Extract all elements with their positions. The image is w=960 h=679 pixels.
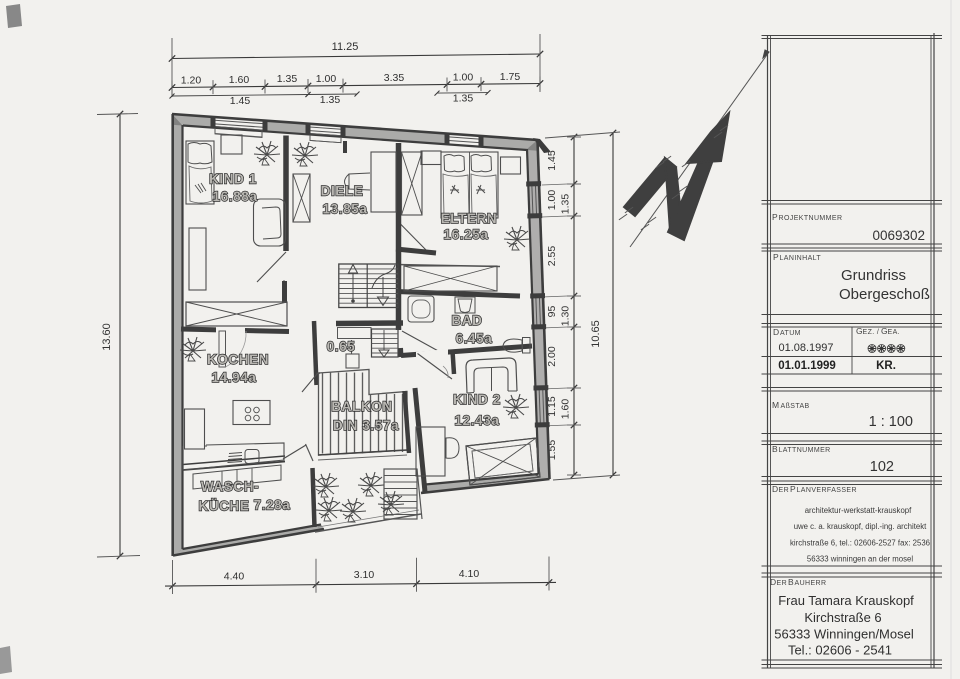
svg-text:uwe c. a. krauskopf, dipl.-ing: uwe c. a. krauskopf, dipl.-ing. architek…	[794, 522, 927, 531]
svg-text:0.65: 0.65	[327, 339, 356, 354]
svg-text:1.35: 1.35	[320, 94, 341, 106]
svg-text:BALKON: BALKON	[331, 399, 392, 414]
svg-text:ROJEKTNUMMER: ROJEKTNUMMER	[779, 215, 843, 222]
svg-text:13.60: 13.60	[101, 323, 113, 351]
svg-text:P: P	[772, 212, 778, 222]
svg-text:M: M	[772, 400, 779, 410]
svg-text:Obergeschoß: Obergeschoß	[839, 286, 930, 303]
svg-text:DIN 3.57a: DIN 3.57a	[333, 418, 399, 433]
svg-text:ATUM: ATUM	[780, 330, 801, 337]
svg-text:6.45a: 6.45a	[456, 331, 493, 346]
svg-text:1.00: 1.00	[453, 71, 474, 83]
svg-text:EZ. /: EZ. /	[863, 329, 880, 336]
svg-text:LANINHALT: LANINHALT	[780, 255, 822, 262]
svg-text:P: P	[773, 252, 779, 262]
svg-text:KOCHEN: KOCHEN	[207, 352, 269, 367]
svg-text:EA.: EA.	[888, 329, 900, 336]
svg-text:10.65: 10.65	[590, 320, 602, 348]
svg-text:1.30: 1.30	[560, 306, 572, 327]
svg-text:Frau Tamara Krauskopf: Frau Tamara Krauskopf	[778, 593, 914, 608]
svg-text:2.55: 2.55	[546, 246, 558, 267]
svg-text:1.00: 1.00	[546, 190, 558, 211]
svg-text:B: B	[788, 577, 794, 587]
svg-text:KIND 1: KIND 1	[209, 172, 257, 187]
svg-text:4.40: 4.40	[224, 570, 245, 582]
svg-text:3.35: 3.35	[384, 72, 405, 84]
svg-text:95: 95	[546, 306, 558, 318]
svg-text:1.60: 1.60	[229, 74, 250, 86]
svg-text:architektur-werkstatt-krauskop: architektur-werkstatt-krauskopf	[805, 506, 912, 515]
svg-text:D: D	[772, 484, 778, 494]
svg-text:102: 102	[870, 459, 894, 475]
svg-text:D: D	[770, 577, 776, 587]
svg-text:16.88a: 16.88a	[213, 189, 258, 204]
svg-text:AUHERR: AUHERR	[795, 580, 827, 587]
svg-text:1.35: 1.35	[560, 194, 572, 215]
svg-text:B: B	[772, 444, 778, 454]
svg-text:01.01.1999: 01.01.1999	[778, 360, 836, 372]
svg-text:Tel.: 02606 - 2541: Tel.: 02606 - 2541	[788, 643, 892, 658]
svg-text:LATTNUMMER: LATTNUMMER	[779, 447, 831, 454]
svg-text:P: P	[790, 484, 796, 494]
svg-text:DIELE: DIELE	[321, 184, 364, 199]
svg-text:4.10: 4.10	[459, 568, 480, 580]
svg-text:56333 Winningen/Mosel: 56333 Winningen/Mosel	[774, 627, 914, 642]
svg-text:ELTERN: ELTERN	[441, 211, 498, 226]
svg-text:BAD: BAD	[451, 313, 482, 328]
svg-text:KR.: KR.	[876, 360, 896, 372]
svg-text:1.35: 1.35	[453, 92, 474, 104]
svg-text:2.00: 2.00	[546, 346, 558, 367]
svg-text:ER: ER	[779, 487, 790, 494]
svg-text:1.45: 1.45	[230, 95, 251, 107]
svg-text:13.85a: 13.85a	[323, 202, 368, 217]
svg-text:1.00: 1.00	[316, 73, 337, 85]
svg-text:16.25a: 16.25a	[444, 227, 489, 242]
svg-text:KÜCHE: KÜCHE	[198, 499, 249, 514]
svg-text:56333 winningen an der mosel: 56333 winningen an der mosel	[807, 555, 913, 564]
svg-text:1.35: 1.35	[277, 73, 298, 85]
svg-text:1.20: 1.20	[181, 74, 202, 86]
svg-text:3.10: 3.10	[354, 569, 375, 581]
svg-text:1.60: 1.60	[560, 399, 572, 420]
svg-text:14.94a: 14.94a	[212, 370, 257, 385]
svg-text:WASCH-: WASCH-	[201, 479, 259, 494]
svg-text:12.43a: 12.43a	[455, 413, 500, 428]
svg-text:kirchstraße 6, tel.: 02606-252: kirchstraße 6, tel.: 02606-2527 fax: 253…	[790, 539, 930, 548]
svg-text:01.08.1997: 01.08.1997	[778, 342, 833, 354]
svg-text:D: D	[773, 327, 779, 337]
svg-text:0069302: 0069302	[872, 228, 925, 243]
svg-text:1.45: 1.45	[546, 150, 558, 171]
svg-text:Kirchstraße 6: Kirchstraße 6	[804, 610, 881, 625]
svg-text:KIND 2: KIND 2	[453, 392, 501, 407]
svg-text:11.25: 11.25	[332, 41, 359, 53]
svg-text:AßSTAB: AßSTAB	[781, 403, 810, 410]
svg-text:1 : 100: 1 : 100	[869, 414, 913, 430]
svg-text:7.28a: 7.28a	[254, 498, 291, 513]
svg-text:1.75: 1.75	[500, 71, 521, 83]
svg-text:Grundriss: Grundriss	[841, 267, 906, 284]
svg-text:ER: ER	[777, 580, 788, 587]
svg-text:LANVERFASSER: LANVERFASSER	[797, 487, 857, 494]
